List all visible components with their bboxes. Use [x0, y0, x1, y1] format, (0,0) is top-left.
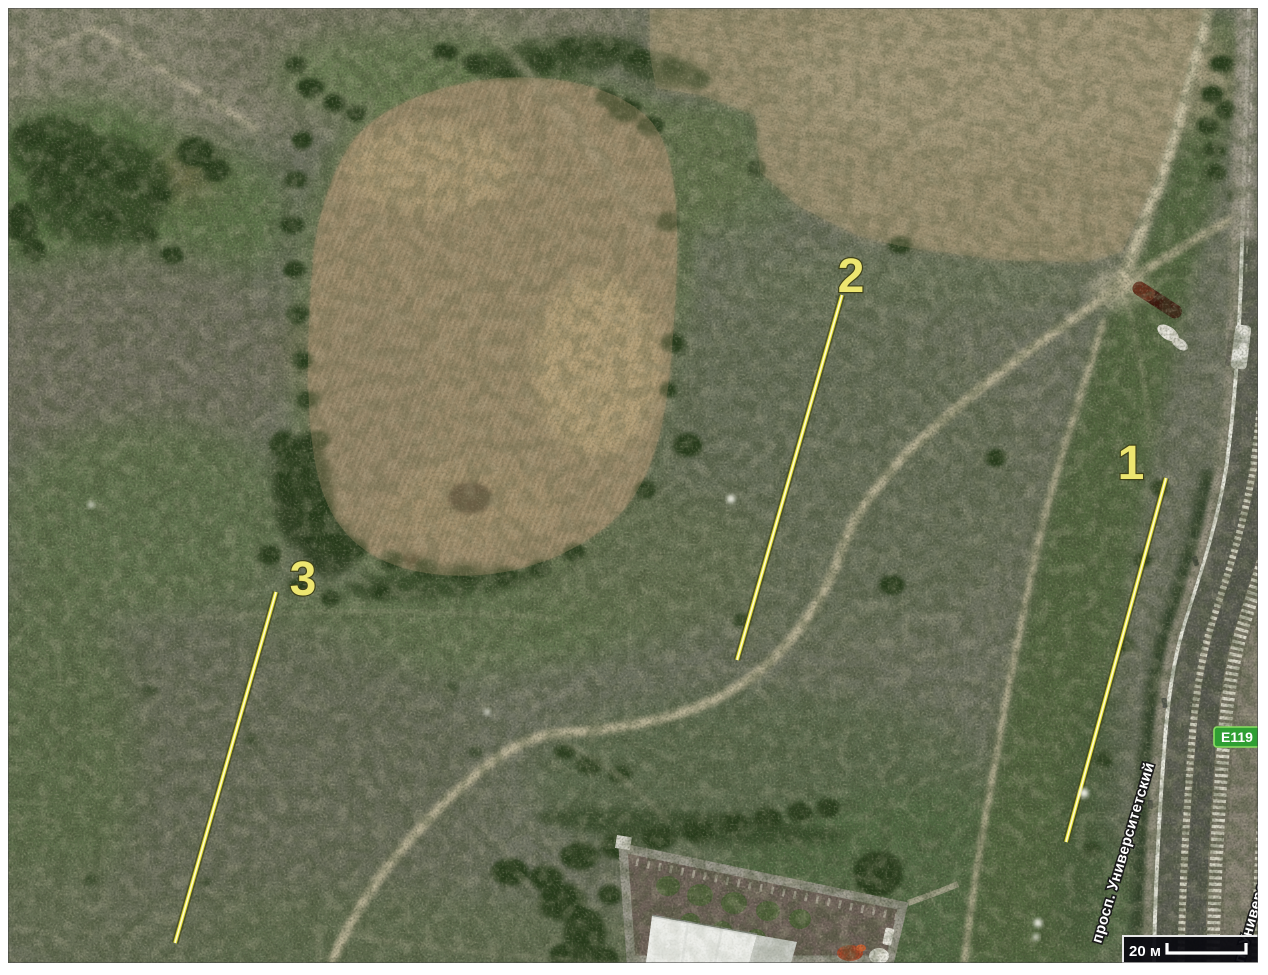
svg-text:E119: E119: [1221, 729, 1253, 745]
svg-text:1: 1: [1118, 437, 1145, 490]
svg-text:3: 3: [290, 553, 317, 606]
svg-text:2: 2: [838, 250, 865, 303]
svg-text:20 м: 20 м: [1129, 943, 1161, 960]
